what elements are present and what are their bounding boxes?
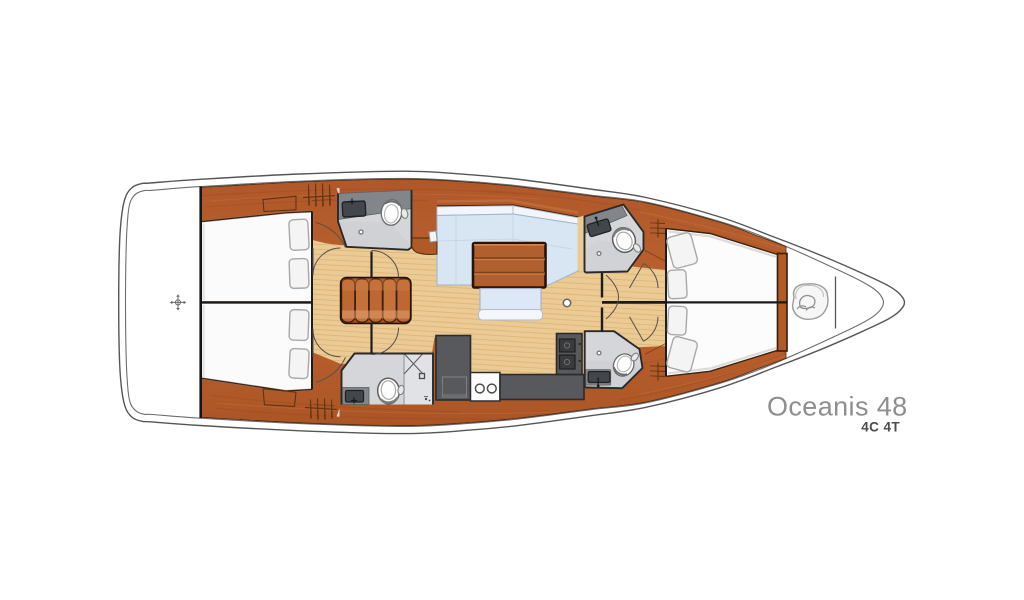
svg-text:4C 4T: 4C 4T <box>861 420 900 435</box>
svg-text:Oceanis 48: Oceanis 48 <box>767 392 908 422</box>
